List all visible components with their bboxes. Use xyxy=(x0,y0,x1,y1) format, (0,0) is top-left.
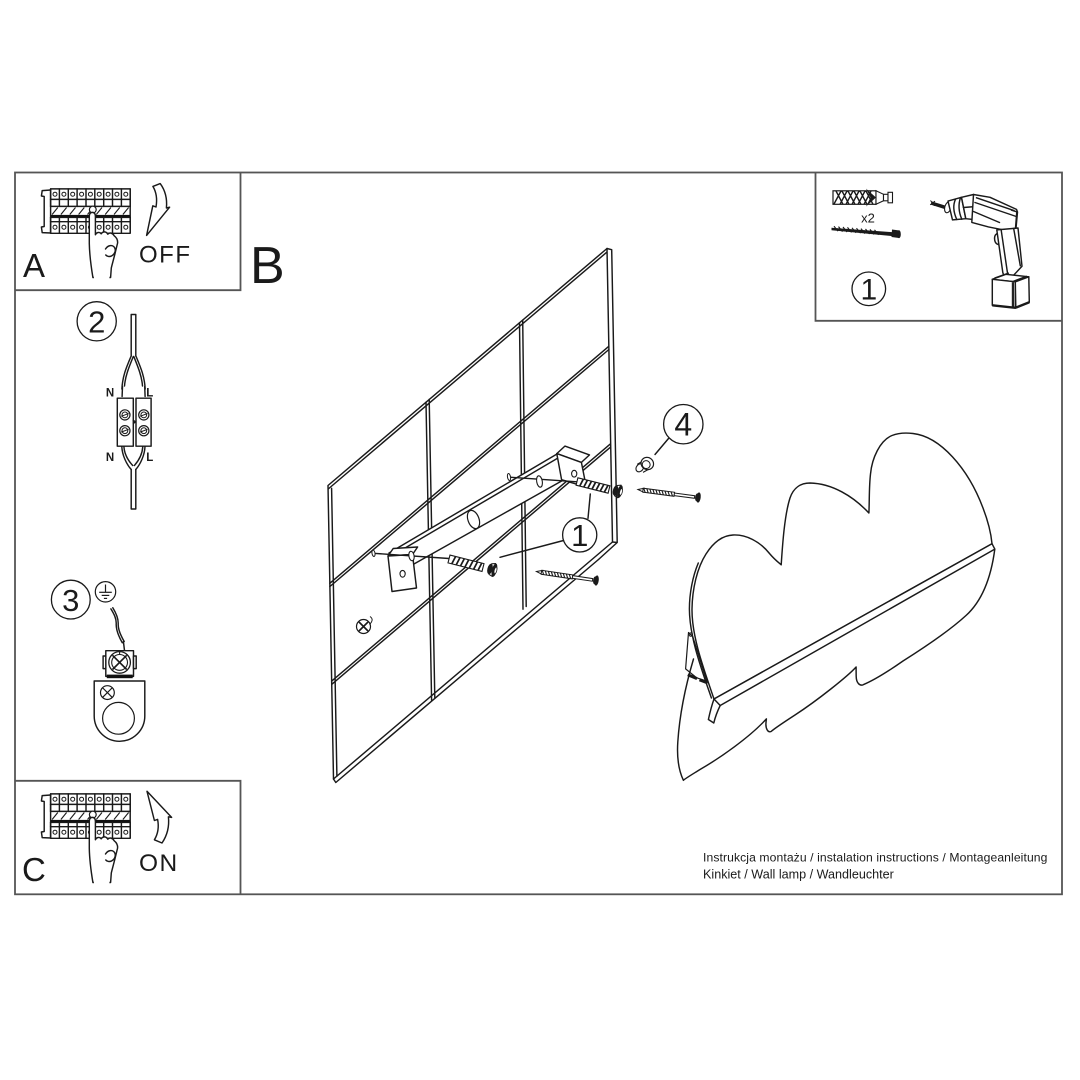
svg-text:N: N xyxy=(106,388,114,400)
svg-text:Instrukcja montażu / instalati: Instrukcja montażu / instalation instruc… xyxy=(703,851,1048,865)
svg-text:1: 1 xyxy=(571,518,588,553)
svg-text:4: 4 xyxy=(674,407,692,443)
svg-text:A: A xyxy=(23,247,45,284)
svg-text:Kinkiet / Wall lamp / Wandleuc: Kinkiet / Wall lamp / Wandleuchter xyxy=(703,868,894,882)
svg-text:2: 2 xyxy=(88,305,105,340)
svg-text:3: 3 xyxy=(62,583,79,618)
svg-text:ON: ON xyxy=(139,850,179,877)
svg-text:OFF: OFF xyxy=(139,242,192,269)
svg-text:N: N xyxy=(106,452,114,464)
svg-text:C: C xyxy=(22,851,46,888)
svg-text:L: L xyxy=(146,452,153,464)
svg-text:1: 1 xyxy=(860,274,877,307)
svg-text:x2: x2 xyxy=(861,211,875,226)
svg-text:B: B xyxy=(250,237,285,295)
